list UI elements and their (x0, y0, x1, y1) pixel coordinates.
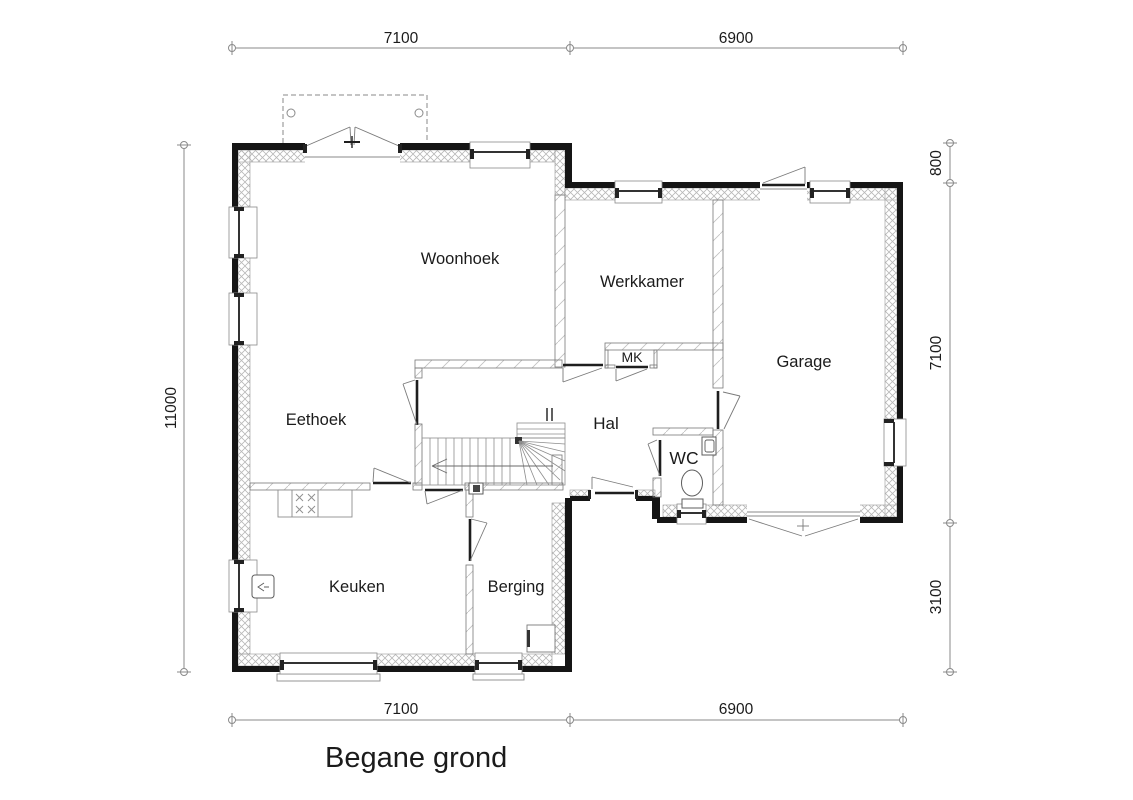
garage-side-door (760, 167, 807, 201)
room-label-woonhoek: Woonhoek (421, 250, 500, 268)
room-label-wc: WC (669, 448, 698, 468)
dim-left-height: 11000 (163, 387, 180, 429)
room-label-hal: Hal (593, 414, 619, 433)
canopy-post (415, 109, 423, 117)
window-garage-east (884, 419, 906, 466)
dim-top-left: 7100 (384, 30, 419, 47)
dim-right-800: 800 (928, 150, 945, 176)
page-title: Begane grond (325, 742, 507, 774)
dimension-bottom: 7100 6900 (229, 701, 907, 727)
door-werkkamer (563, 365, 603, 382)
floor-plan-svg: 7100 6900 7100 6900 11000 800 7100 3100 … (0, 0, 1133, 800)
dimension-top: 7100 6900 (229, 30, 907, 55)
boiler-fixture (527, 625, 555, 652)
dimension-left: 11000 (163, 142, 191, 676)
window-woonhoek-top (470, 142, 530, 168)
floor-plan-page: 7100 6900 7100 6900 11000 800 7100 3100 … (0, 0, 1133, 800)
french-doors (303, 127, 402, 164)
room-label-garage: Garage (776, 353, 831, 371)
dimension-right: 800 7100 3100 (928, 140, 957, 676)
staircase (422, 408, 565, 485)
stair-direction-arrow (432, 459, 553, 473)
door-berging (470, 519, 487, 561)
front-door (588, 477, 638, 502)
window-keuken (277, 653, 380, 681)
door-wc (648, 440, 660, 476)
door-eethoek (403, 380, 417, 425)
fixtures (252, 437, 716, 652)
room-label-mk: MK (622, 349, 644, 365)
canopy-outline (283, 95, 427, 147)
stove-counter-fixture (278, 490, 352, 517)
garage-doors (747, 504, 860, 536)
dim-bottom-right: 6900 (719, 701, 754, 718)
room-label-eethoek: Eethoek (286, 411, 347, 429)
dim-right-3100: 3100 (928, 579, 945, 614)
toilet-fixture (682, 470, 704, 508)
dim-top-right: 6900 (719, 30, 754, 47)
door-keuken-hal (425, 490, 463, 504)
room-label-berging: Berging (488, 578, 545, 596)
window-garage-top (810, 181, 850, 203)
window-berging (473, 653, 524, 680)
dim-bottom-left: 7100 (384, 701, 419, 718)
canopy-post (287, 109, 295, 117)
dim-right-7100: 7100 (928, 335, 945, 370)
window-left-2 (229, 293, 257, 345)
door-keuken-eethoek (373, 468, 411, 483)
window-left-1 (229, 207, 257, 258)
door-hal-garage (718, 391, 740, 429)
window-werkkamer (615, 181, 662, 203)
keuken-sink-fixture (252, 575, 274, 598)
duct-fixture (469, 483, 483, 494)
room-label-keuken: Keuken (329, 578, 385, 596)
room-label-werkkamer: Werkkamer (600, 273, 685, 291)
wc-sink-fixture (702, 437, 716, 455)
door-mk (616, 367, 648, 381)
